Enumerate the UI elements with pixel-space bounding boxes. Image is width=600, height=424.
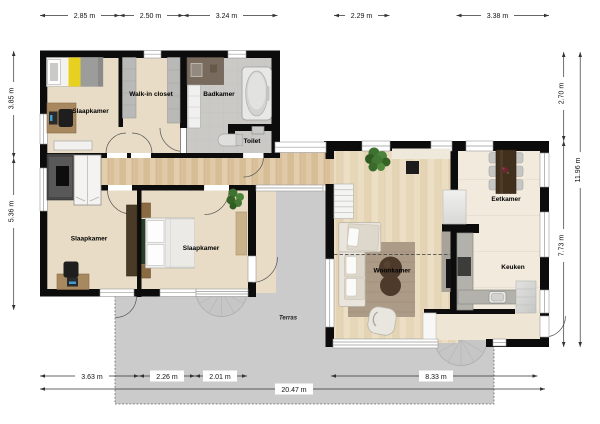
svg-text:Eetkamer: Eetkamer <box>491 196 521 203</box>
svg-text:Walk-in closet: Walk-in closet <box>129 91 173 98</box>
svg-text:2.29 m: 2.29 m <box>351 13 373 20</box>
svg-text:5.36 m: 5.36 m <box>9 201 16 223</box>
svg-text:3.85 m: 3.85 m <box>9 88 16 110</box>
svg-text:Terras: Terras <box>279 316 298 322</box>
svg-text:20.47 m: 20.47 m <box>281 387 306 394</box>
svg-text:2.70 m: 2.70 m <box>559 83 566 105</box>
svg-text:3.24 m: 3.24 m <box>216 13 238 20</box>
svg-text:2.26 m: 2.26 m <box>156 374 178 381</box>
svg-text:Keuken: Keuken <box>501 264 525 271</box>
svg-text:11.96 m: 11.96 m <box>575 157 582 182</box>
svg-text:3.38 m: 3.38 m <box>487 13 509 20</box>
svg-text:Slaapkamer: Slaapkamer <box>72 108 109 115</box>
svg-text:3.63 m: 3.63 m <box>81 374 103 381</box>
svg-text:Badkamer: Badkamer <box>203 91 235 98</box>
svg-text:2.50 m: 2.50 m <box>140 13 162 20</box>
svg-text:8.33 m: 8.33 m <box>425 374 447 381</box>
svg-text:Slaapkamer: Slaapkamer <box>183 245 220 252</box>
svg-text:7.73 m: 7.73 m <box>559 235 566 257</box>
svg-text:2.01 m: 2.01 m <box>209 374 231 381</box>
svg-text:Toilet: Toilet <box>244 138 262 145</box>
svg-text:Slaapkamer: Slaapkamer <box>71 236 108 243</box>
svg-text:2.85 m: 2.85 m <box>74 13 96 20</box>
svg-text:Woonkamer: Woonkamer <box>373 268 411 275</box>
